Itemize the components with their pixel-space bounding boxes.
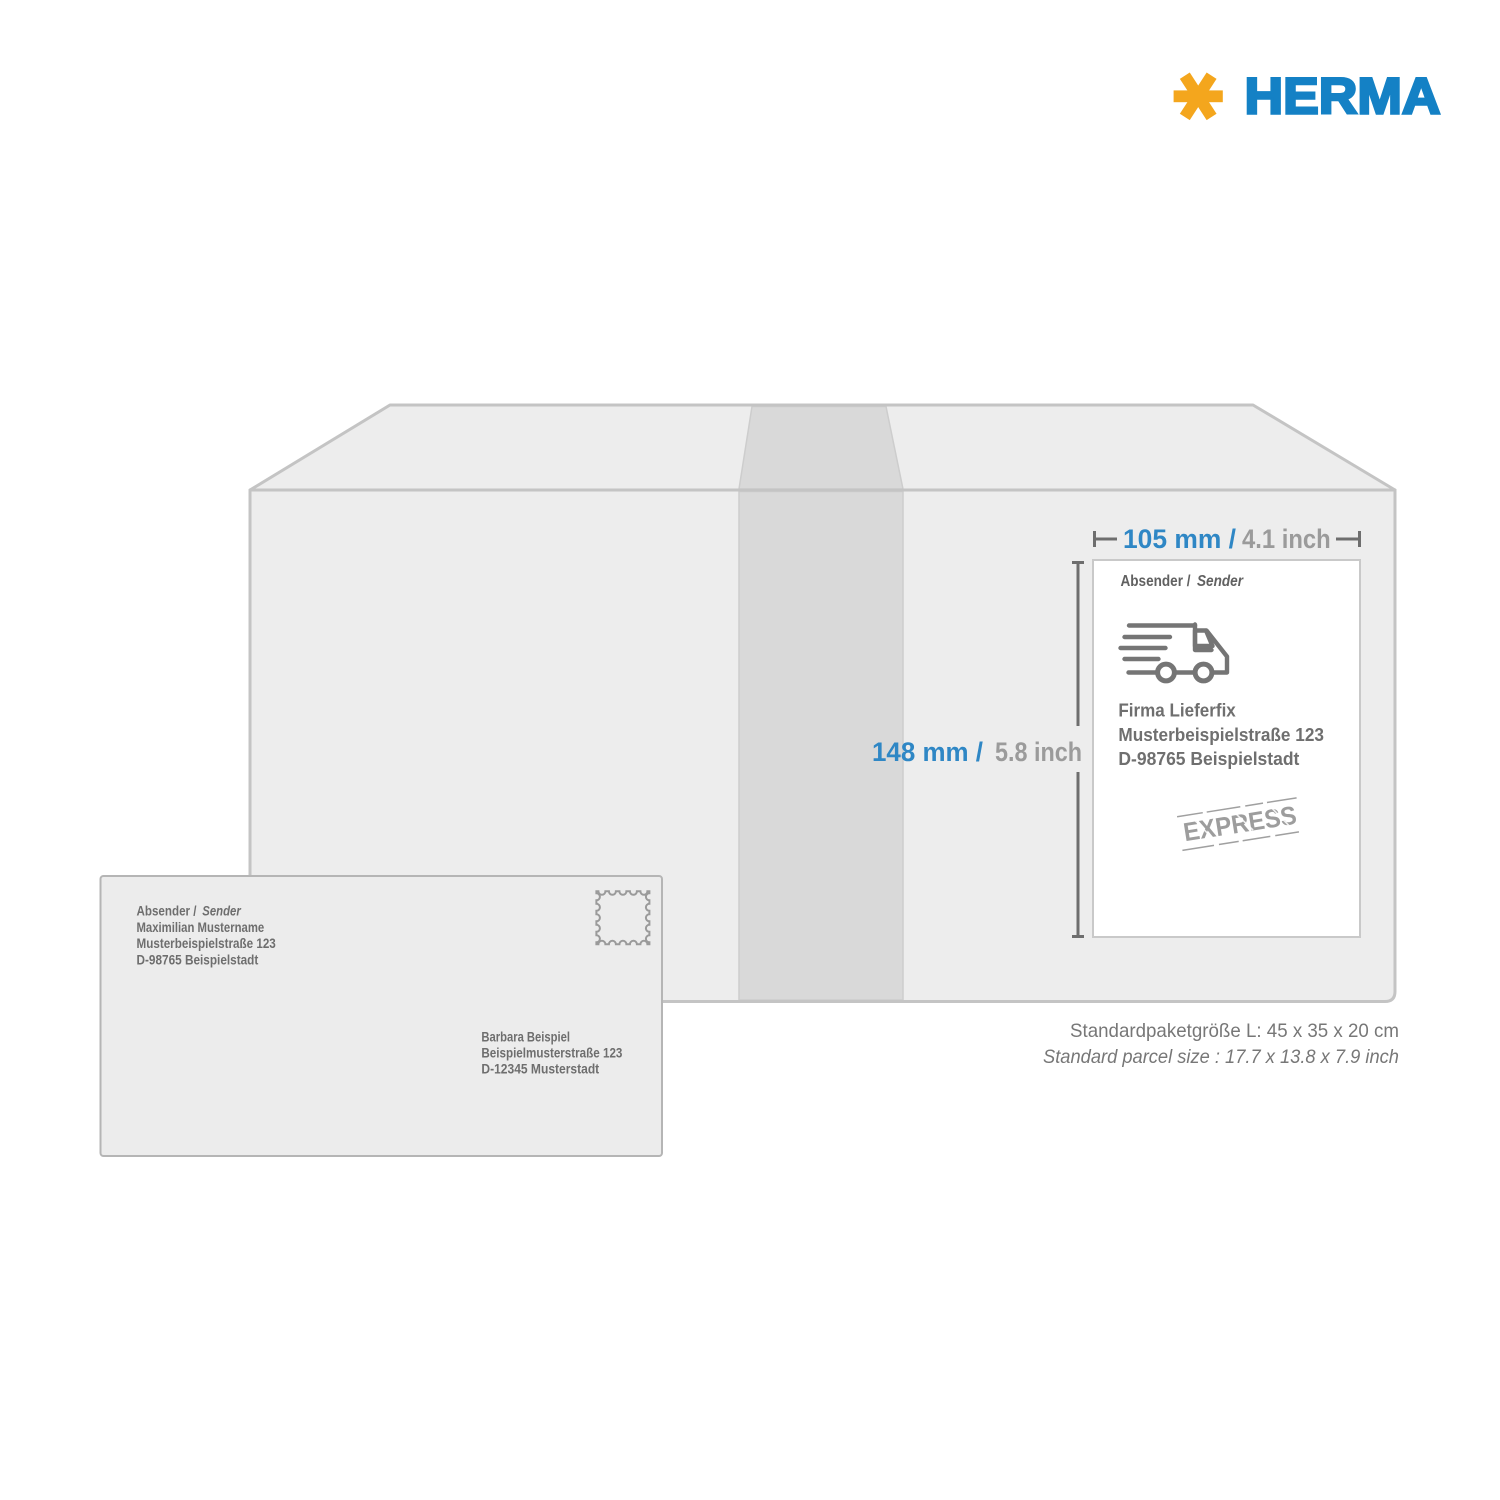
svg-text:D-98765 Beispielstadt: D-98765 Beispielstadt: [1118, 749, 1299, 769]
svg-text:HERMA: HERMA: [1245, 68, 1441, 125]
svg-text:5.8 inch: 5.8 inch: [995, 737, 1082, 767]
svg-text:D-98765 Beispielstadt: D-98765 Beispielstadt: [137, 953, 259, 968]
svg-text:Barbara Beispiel: Barbara Beispiel: [481, 1030, 570, 1045]
svg-text:Beispielmusterstraße 123: Beispielmusterstraße 123: [481, 1045, 622, 1060]
svg-text:105 mm /: 105 mm /: [1123, 524, 1237, 554]
svg-text:Standard parcel size : 17.7 x: Standard parcel size : 17.7 x 13.8 x 7.9…: [1043, 1046, 1399, 1068]
svg-text:Sender: Sender: [202, 904, 241, 919]
svg-text:Standardpaketgröße L: 45 x 35: Standardpaketgröße L: 45 x 35 x 20 cm: [1070, 1020, 1399, 1042]
svg-text:Musterbeispielstraße 123: Musterbeispielstraße 123: [1118, 725, 1324, 745]
svg-text:Firma Lieferfix: Firma Lieferfix: [1118, 701, 1235, 721]
svg-text:148 mm /: 148 mm /: [872, 737, 984, 767]
svg-text:Absender /: Absender /: [1121, 573, 1191, 590]
svg-text:Absender /: Absender /: [137, 904, 197, 919]
svg-text:Maximilian Mustername: Maximilian Mustername: [137, 920, 265, 935]
svg-text:D-12345 Musterstadt: D-12345 Musterstadt: [481, 1061, 599, 1076]
svg-text:4.1 inch: 4.1 inch: [1242, 524, 1331, 554]
svg-text:Sender: Sender: [1197, 573, 1244, 590]
svg-text:Musterbeispielstraße 123: Musterbeispielstraße 123: [137, 936, 277, 951]
